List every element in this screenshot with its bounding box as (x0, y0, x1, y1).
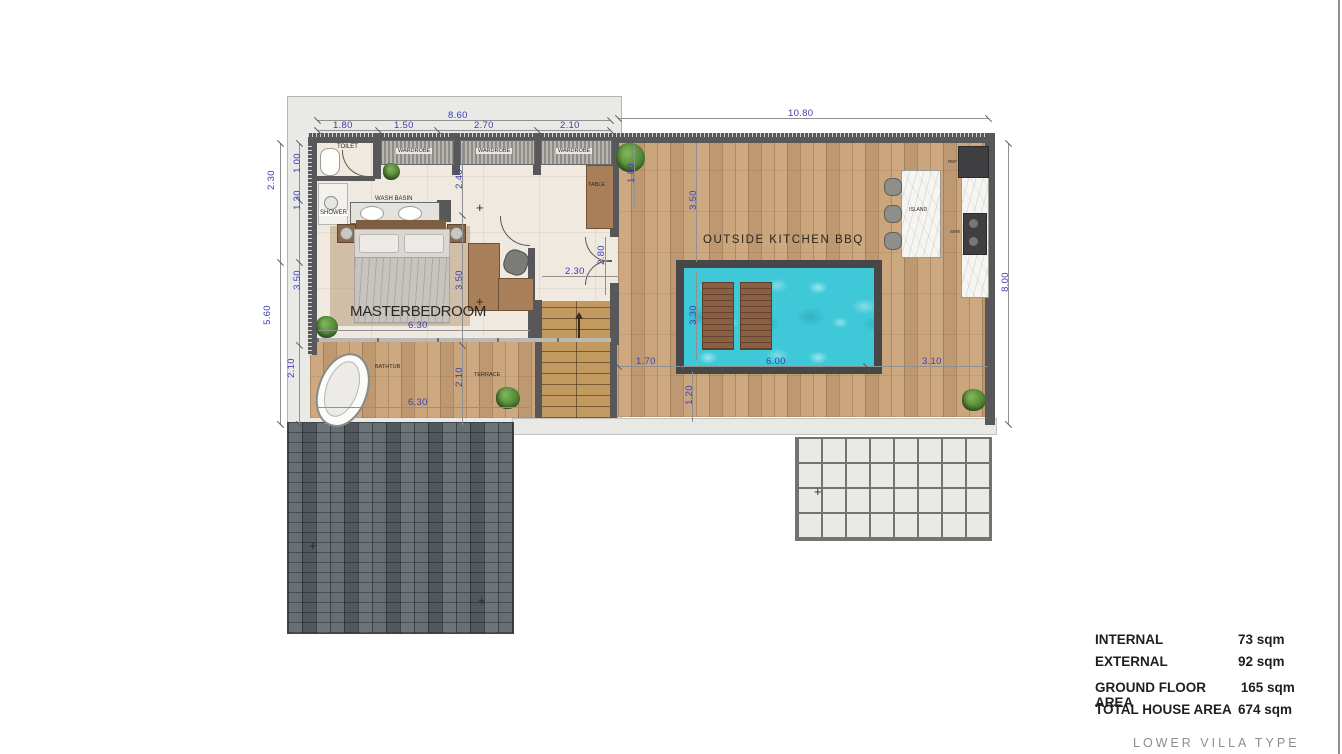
dim-label: 3.50 (455, 270, 465, 290)
refrigerator (958, 146, 989, 178)
page-border-right (1338, 0, 1340, 754)
dim-label: 2.40 (455, 169, 465, 189)
legend-value: 92 sqm (1238, 654, 1300, 676)
room-label-sink: SINK (950, 229, 961, 234)
room-label-wardrobe-1: WARDROBE (396, 148, 432, 154)
dim-label: 1.20 (685, 385, 695, 405)
plan-title: LOWER VILLA TYPE (1133, 736, 1300, 750)
dim-label: 2.70 (474, 121, 494, 131)
legend-label: GROUND FLOOR AREA (1095, 680, 1241, 702)
legend-value: 73 sqm (1238, 632, 1300, 654)
room-label-wardrobe-2: WARDROBE (476, 148, 512, 154)
dim-label: 2.10 (560, 121, 580, 131)
dim-label: 1.50 (394, 121, 414, 131)
pool-lounger-2 (740, 282, 772, 350)
reference-cross: + (476, 203, 484, 213)
reference-cross: + (478, 596, 486, 606)
area-legend: INTERNAL 73 sqm EXTERNAL 92 sqm GROUND F… (1095, 632, 1300, 724)
plant-icon-bedroom (316, 316, 338, 338)
plant-icon-bath (383, 163, 400, 180)
legend-label: INTERNAL (1095, 632, 1163, 654)
room-label-island: ISLAND (909, 207, 927, 213)
dim-label: 6.30 (408, 321, 428, 331)
paver-grid (795, 437, 992, 541)
dim-label: 1.80 (627, 163, 637, 183)
dim-label: 5.60 (263, 305, 273, 325)
dim-line (280, 143, 281, 425)
legend-row-internal: INTERNAL 73 sqm (1095, 632, 1300, 654)
dim-label: 6.30 (408, 398, 428, 408)
dim-label: 1.70 (636, 357, 656, 367)
dim-label-top-total: 8.60 (448, 111, 468, 121)
pillow-left (359, 234, 399, 253)
legend-row-total-house: TOTAL HOUSE AREA 674 sqm (1095, 702, 1300, 724)
bar-stool-1 (884, 178, 902, 196)
dim-label: 2.10 (287, 358, 297, 378)
dim-label: 3.30 (689, 305, 699, 325)
wall-stair-right (610, 300, 617, 418)
dim-label: 3.10 (922, 357, 942, 367)
room-label-ref: REF (948, 159, 957, 164)
dim-label: 3.50 (293, 270, 303, 290)
walkway-strip (512, 418, 997, 435)
dim-label: 1.30 (293, 190, 303, 210)
kitchen-island (901, 170, 941, 258)
room-label-toilet: TOILET (337, 144, 358, 150)
side-table (586, 165, 614, 229)
stairs-arrow-head (575, 312, 583, 319)
bar-stool-2 (884, 205, 902, 223)
desk-horizontal (498, 278, 534, 311)
room-label-wardrobe-3: WARDROBE (556, 148, 592, 154)
legend-value: 674 sqm (1238, 702, 1300, 724)
room-label-washbasin: WASH BASIN (375, 196, 412, 202)
dim-label: 6.00 (766, 357, 786, 367)
room-label-bathtub: BATHTUB (375, 364, 400, 370)
pool-lounger-1 (702, 282, 734, 350)
sink-basin-1 (969, 219, 978, 228)
sink-basin-2 (969, 237, 978, 246)
dim-label-top-right: 10.80 (788, 109, 813, 119)
dim-label: 2.30 (267, 170, 277, 190)
plant-icon-deck (962, 389, 986, 411)
room-label-terrace: TERRACE (474, 372, 500, 378)
dim-label: 1.00 (293, 153, 303, 173)
floor-plan-canvas: + + + + + 8.60 1.80 1.50 2.70 2.10 10.80… (0, 0, 1342, 754)
reference-cross: + (309, 541, 317, 551)
lamp-left-icon (340, 227, 353, 240)
dim-label: 2.30 (565, 267, 585, 277)
dim-label: 1.80 (333, 121, 353, 131)
room-label-table: TABLE (588, 182, 605, 188)
washbasin-left (360, 206, 384, 221)
plant-icon-terrace (496, 387, 520, 409)
dim-label: 8.00 (1001, 272, 1011, 292)
dim-label: 2.10 (455, 367, 465, 387)
bed-headboard (356, 220, 446, 229)
toilet-fixture (320, 148, 340, 176)
dim-label: 3.50 (689, 190, 699, 210)
desk-vertical (468, 243, 500, 311)
bar-stool-3 (884, 232, 902, 250)
room-label-shower: SHOWER (319, 210, 348, 216)
pillow-right (404, 234, 444, 253)
legend-value: 165 sqm (1241, 680, 1300, 702)
reference-cross: + (814, 487, 822, 497)
washbasin-right (398, 206, 422, 221)
sliding-glass-door-south (317, 338, 611, 342)
legend-label: EXTERNAL (1095, 654, 1168, 676)
legend-row-ground-floor: GROUND FLOOR AREA 165 sqm (1095, 680, 1300, 702)
room-label-outside-kitchen: OUTSIDE KITCHEN BBQ (703, 234, 864, 246)
room-label-master: MASTERBEDROOM (350, 303, 486, 320)
legend-row-external: EXTERNAL 92 sqm (1095, 654, 1300, 676)
wall-stub-1 (373, 133, 381, 179)
legend-label: TOTAL HOUSE AREA (1095, 702, 1232, 724)
shower-head-icon (324, 196, 338, 210)
wall-stair-left (535, 300, 542, 418)
dim-label: 2.80 (597, 245, 607, 265)
